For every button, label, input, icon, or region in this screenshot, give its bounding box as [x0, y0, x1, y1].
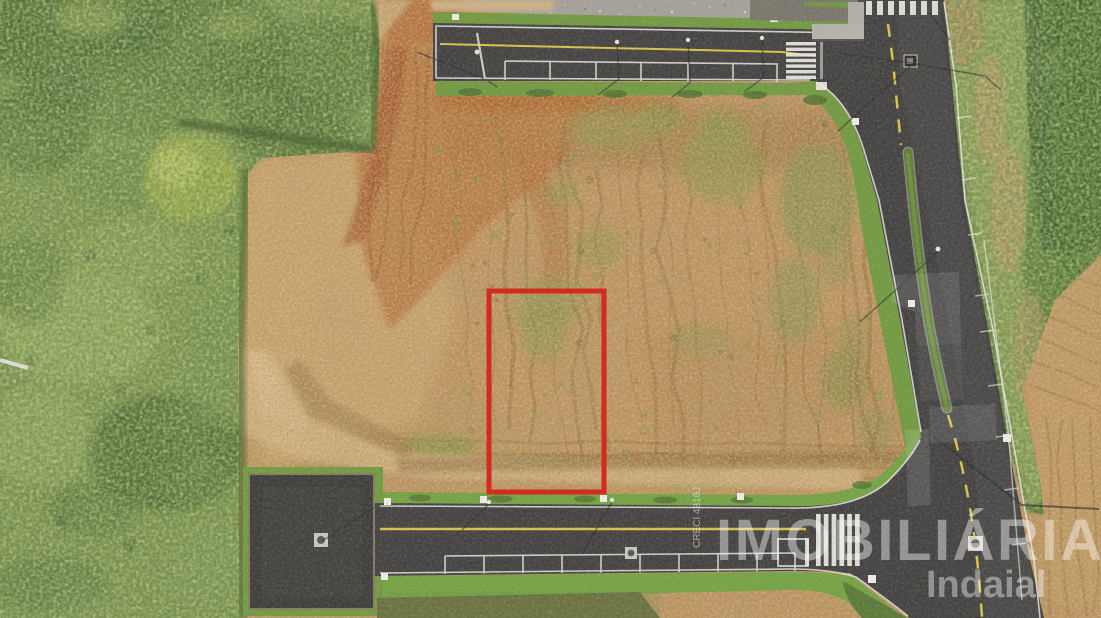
svg-text:CRECI 4816J: CRECI 4816J [692, 487, 703, 548]
svg-text:Indaial: Indaial [926, 564, 1046, 606]
